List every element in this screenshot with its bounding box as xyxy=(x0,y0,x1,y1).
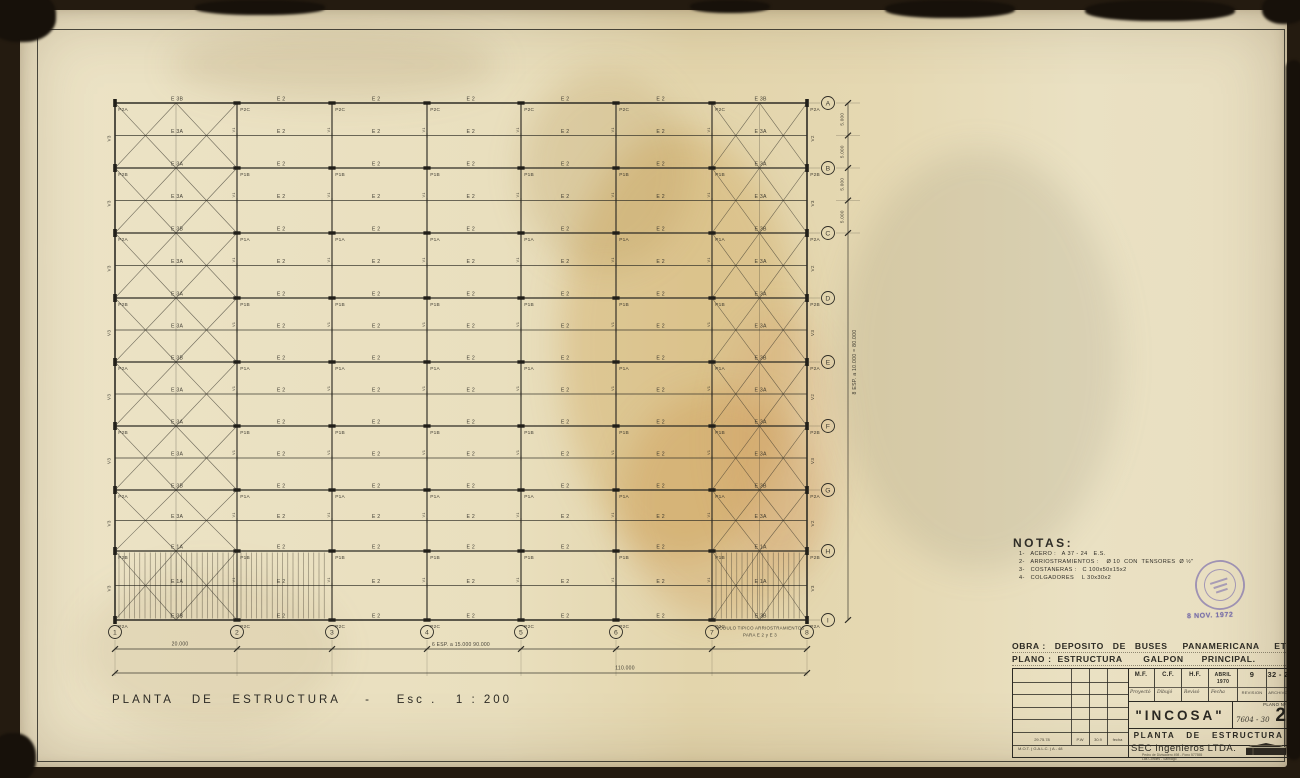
title-block-table: 29.75.78 P.W 30.9 fecha M.O.T. ( G.A.L.C… xyxy=(1012,668,1290,758)
plan-number-cell: PLANO Nº 7604 - 30 2 xyxy=(1233,701,1289,728)
scan-edge-artifact xyxy=(1286,60,1300,760)
scan-edge-artifact xyxy=(690,0,770,13)
title-block: OBRA : DEPOSITO DE BUSES PANAMERICANA ET… xyxy=(1012,641,1290,758)
notes-title: NOTAS: xyxy=(1013,536,1194,550)
scan-edge-artifact xyxy=(1085,0,1235,21)
signature-row: M.F.Proyectó C.F.Dibujó H.F.Revisó ABRIL… xyxy=(1128,669,1289,702)
scan-edge-artifact xyxy=(1262,0,1300,24)
title-block-right: M.F.Proyectó C.F.Dibujó H.F.Revisó ABRIL… xyxy=(1128,669,1289,757)
firm-address: Las Condes - Santiago xyxy=(1128,758,1289,762)
note-item: 1- ACERO : A 37 - 24 E.S. xyxy=(1019,550,1194,558)
note-item: 4- COLGADORES L 30x30x2 xyxy=(1019,574,1194,582)
revision-grid: 29.75.78 P.W 30.9 fecha M.O.T. ( G.A.L.C… xyxy=(1013,669,1129,757)
plano-line: PLANO : ESTRUCTURA GALPON PRINCIPAL. xyxy=(1012,654,1290,666)
note-item: 3- COSTANERAS : C 100x50x15x2 xyxy=(1019,566,1194,574)
firm-cell: SEC Ingenieros LTDA. Pedro de Divisadero… xyxy=(1128,742,1289,757)
notes-block: NOTAS: 1- ACERO : A 37 - 24 E.S. 2- ARRI… xyxy=(1013,536,1194,582)
scanned-blueprint-sheet: E 3AE 2E 2E 2E 2E 2E 3AV3V2V1V1V1V1V1V1E… xyxy=(0,0,1300,778)
approval-stamp: 8 NOV. 1972 xyxy=(1183,558,1258,624)
company-name: "INCOSA" xyxy=(1128,701,1233,728)
scan-edge-artifact xyxy=(195,0,325,15)
revision-note: M.O.T. ( G.A.L.C. ) A - 48 xyxy=(1013,746,1133,751)
drawing-caption: PLANTA DE ESTRUCTURA - Esc . 1 : 200 xyxy=(112,694,512,706)
plan-number: 7604 - 30 xyxy=(1236,716,1270,724)
sheet-number: 2 xyxy=(1275,705,1286,727)
firm-logo-icon xyxy=(1245,742,1287,756)
scan-edge-artifact xyxy=(885,0,1015,18)
obra-line: OBRA : DEPOSITO DE BUSES PANAMERICANA ET… xyxy=(1012,641,1290,653)
revision-row: 29.75.78 P.W 30.9 fecha xyxy=(1013,733,1128,745)
scan-edge-artifact xyxy=(0,733,36,778)
note-item: 2- ARRIOSTRAMIENTOS : Ø 10 CON TENSORES … xyxy=(1019,558,1194,566)
